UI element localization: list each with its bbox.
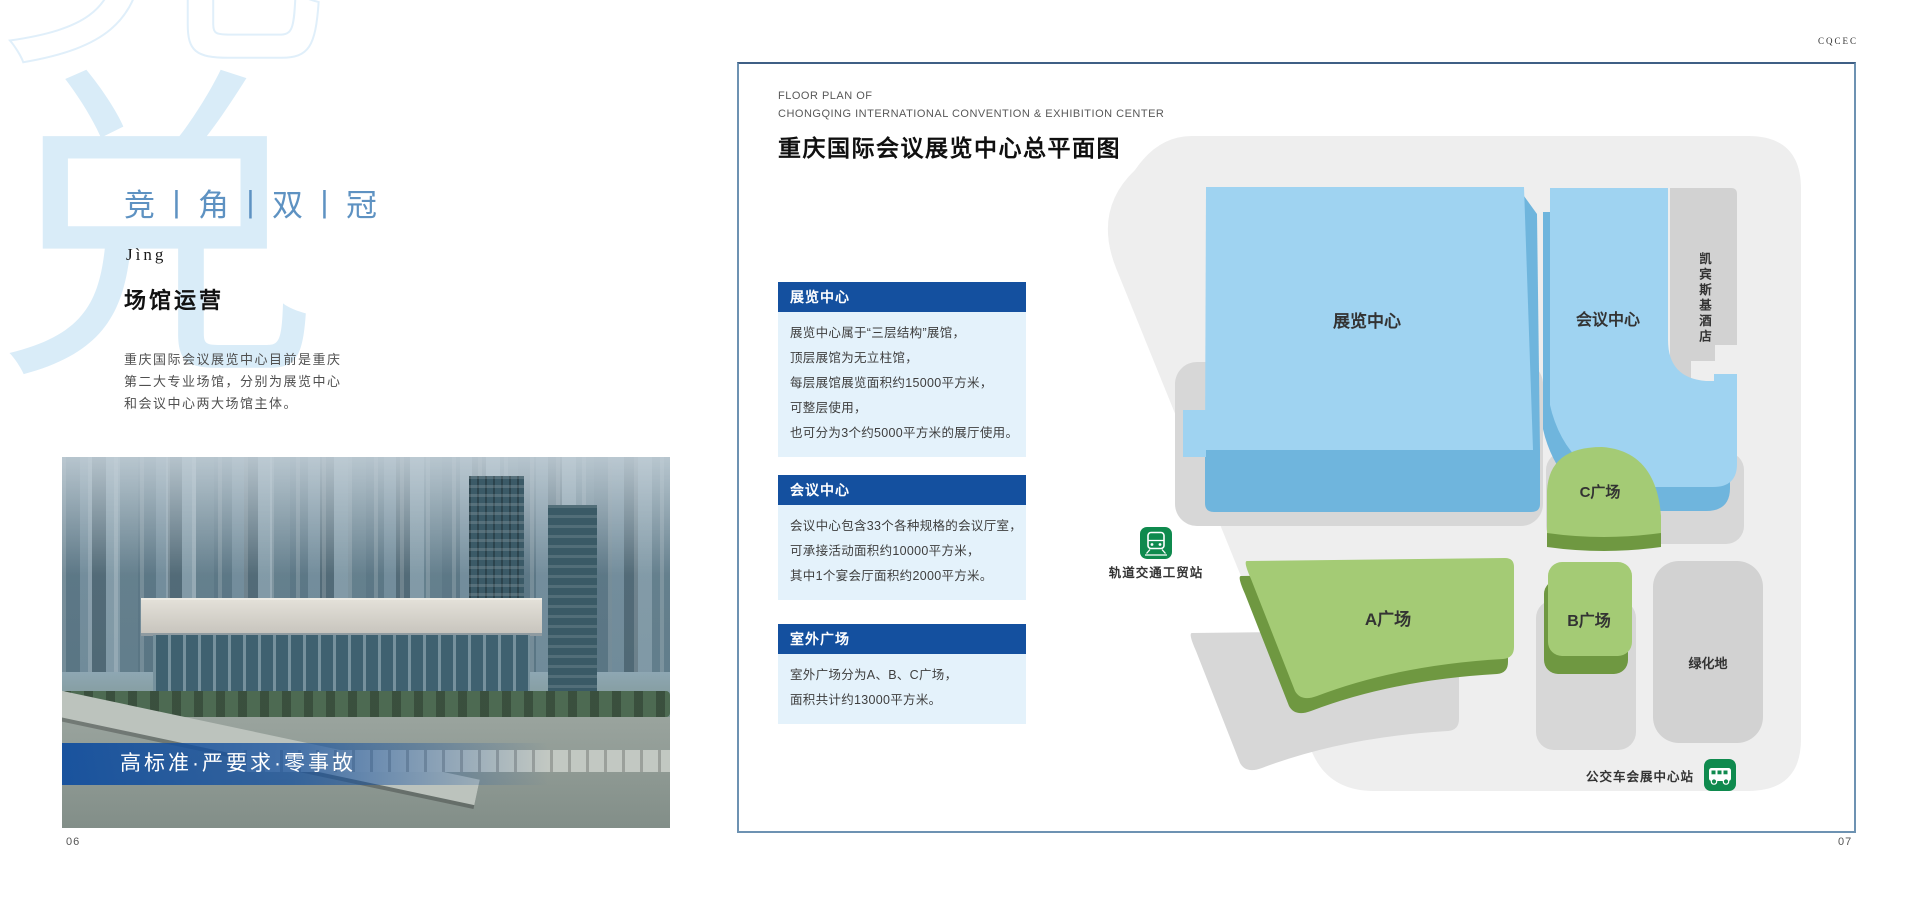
- info-box-title: 展览中心: [778, 282, 1026, 312]
- photo-exhibition-hall-facade: [153, 635, 530, 694]
- info-line: 展览中心属于“三层结构”展馆，: [790, 321, 1014, 346]
- label-convention-center: 会议中心: [1576, 310, 1640, 329]
- exhibition-center-top-step: [1183, 410, 1206, 457]
- page-number-left: 06: [66, 836, 80, 848]
- exhibition-center-side: [1205, 450, 1540, 512]
- info-box-title: 会议中心: [778, 475, 1026, 505]
- photo-caption: 高标准·严要求·零事故: [120, 743, 356, 785]
- info-box-convention: 会议中心 会议中心包含33个各种规格的会议厅室， 可承接活动面积约10000平方…: [778, 475, 1026, 600]
- info-line: 面积共计约13000平方米。: [790, 688, 1014, 713]
- info-line: 其中1个宴会厅面积约2000平方米。: [790, 564, 1014, 589]
- pinyin-label: Jìng: [126, 245, 166, 265]
- bus-icon: [1704, 759, 1736, 791]
- info-box-exhibition: 展览中心 展览中心属于“三层结构”展馆， 顶层展馆为无立柱馆， 每层展馆展览面积…: [778, 282, 1026, 457]
- label-exhibition-center: 展览中心: [1333, 311, 1401, 331]
- intro-paragraph: 重庆国际会议展览中心目前是重庆 第二大专业场馆，分别为展览中心 和会议中心两大场…: [124, 349, 342, 415]
- photo-tower: [548, 505, 597, 691]
- info-line: 每层展馆展览面积约15000平方米，: [790, 371, 1014, 396]
- label-plaza-c: C广场: [1580, 483, 1621, 501]
- info-line: 可整层使用，: [790, 396, 1014, 421]
- label-bus-station: 公交车会展中心站: [1586, 769, 1694, 784]
- brochure-spread: 竞 兑 竞丨角丨双丨冠 Jìng 场馆运营 重庆国际会议展览中心目前是重庆 第二…: [0, 0, 1920, 897]
- watermark-outline-glyph: 竞: [0, 0, 336, 88]
- plan-title: 重庆国际会议展览中心总平面图: [778, 129, 1121, 163]
- label-plaza-a: A广场: [1365, 609, 1411, 629]
- info-line: 也可分为3个约5000平方米的展厅使用。: [790, 421, 1014, 446]
- photo-exhibition-hall-roof: [141, 598, 542, 633]
- info-box-plaza: 室外广场 室外广场分为A、B、C广场， 面积共计约13000平方米。: [778, 624, 1026, 724]
- series-title: 竞丨角丨双丨冠: [124, 180, 383, 225]
- label-green-area: 绿化地: [1688, 656, 1727, 671]
- info-line: 会议中心包含33个各种规格的会议厅室，: [790, 514, 1014, 539]
- metro-icon: [1140, 527, 1172, 559]
- plan-eyebrow-line2: CHONGQING INTERNATIONAL CONVENTION & EXH…: [778, 108, 1164, 120]
- photo-caption-band: 高标准·严要求·零事故: [62, 743, 670, 785]
- intro-line: 重庆国际会议展览中心目前是重庆: [124, 349, 342, 371]
- info-line: 室外广场分为A、B、C广场，: [790, 663, 1014, 688]
- section-title: 场馆运营: [124, 283, 224, 315]
- plaza-b-top: [1548, 562, 1632, 656]
- label-metro-station: 轨道交通工贸站: [1109, 565, 1204, 580]
- site-plan-map: 展览中心 会议中心 凯宾斯基酒店 C广场 A广场 B广场 绿化地 轨道交通工贸站: [1085, 125, 1810, 805]
- intro-line: 第二大专业场馆，分别为展览中心: [124, 371, 342, 393]
- info-line: 顶层展馆为无立柱馆，: [790, 346, 1014, 371]
- info-line: 可承接活动面积约10000平方米，: [790, 539, 1014, 564]
- venue-photo: 高标准·严要求·零事故: [62, 457, 670, 828]
- intro-line: 和会议中心两大场馆主体。: [124, 393, 342, 415]
- label-plaza-b: B广场: [1567, 611, 1611, 630]
- label-hotel: 凯宾斯基酒店: [1697, 251, 1712, 345]
- plan-eyebrow-line1: FLOOR PLAN OF: [778, 90, 873, 102]
- page-number-right: 07: [1838, 836, 1852, 848]
- green-area-block: [1653, 561, 1763, 743]
- info-box-title: 室外广场: [778, 624, 1026, 654]
- corner-mark: CQCEC: [1818, 36, 1858, 46]
